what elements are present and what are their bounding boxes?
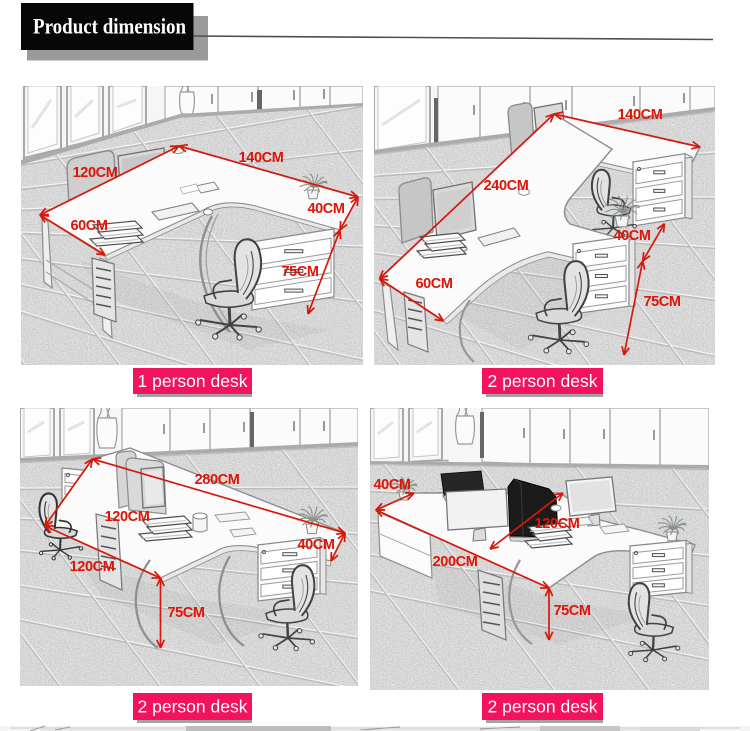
svg-text:2 person desk: 2 person desk <box>488 697 598 717</box>
svg-text:40CM: 40CM <box>297 537 334 553</box>
svg-text:120CM: 120CM <box>73 165 118 181</box>
svg-text:40CM: 40CM <box>307 201 344 217</box>
svg-text:75CM: 75CM <box>167 605 204 621</box>
svg-text:75CM: 75CM <box>281 264 318 280</box>
svg-text:75CM: 75CM <box>553 603 590 619</box>
svg-text:75CM: 75CM <box>643 294 680 310</box>
svg-text:280CM: 280CM <box>195 472 240 488</box>
svg-text:120CM: 120CM <box>70 559 115 575</box>
svg-text:2 person desk: 2 person desk <box>488 371 598 391</box>
svg-text:60CM: 60CM <box>415 276 452 292</box>
svg-text:240CM: 240CM <box>484 178 529 194</box>
svg-text:40CM: 40CM <box>373 477 410 493</box>
svg-text:Product dimension: Product dimension <box>33 14 186 39</box>
svg-text:60CM: 60CM <box>70 218 107 234</box>
svg-text:140CM: 140CM <box>618 107 663 123</box>
svg-text:120CM: 120CM <box>535 516 580 532</box>
svg-text:200CM: 200CM <box>433 554 478 570</box>
svg-text:140CM: 140CM <box>239 150 284 166</box>
svg-text:1 person desk: 1 person desk <box>138 371 248 391</box>
svg-text:40CM: 40CM <box>613 228 650 244</box>
svg-text:2 person desk: 2 person desk <box>138 697 248 717</box>
svg-text:120CM: 120CM <box>105 509 150 525</box>
